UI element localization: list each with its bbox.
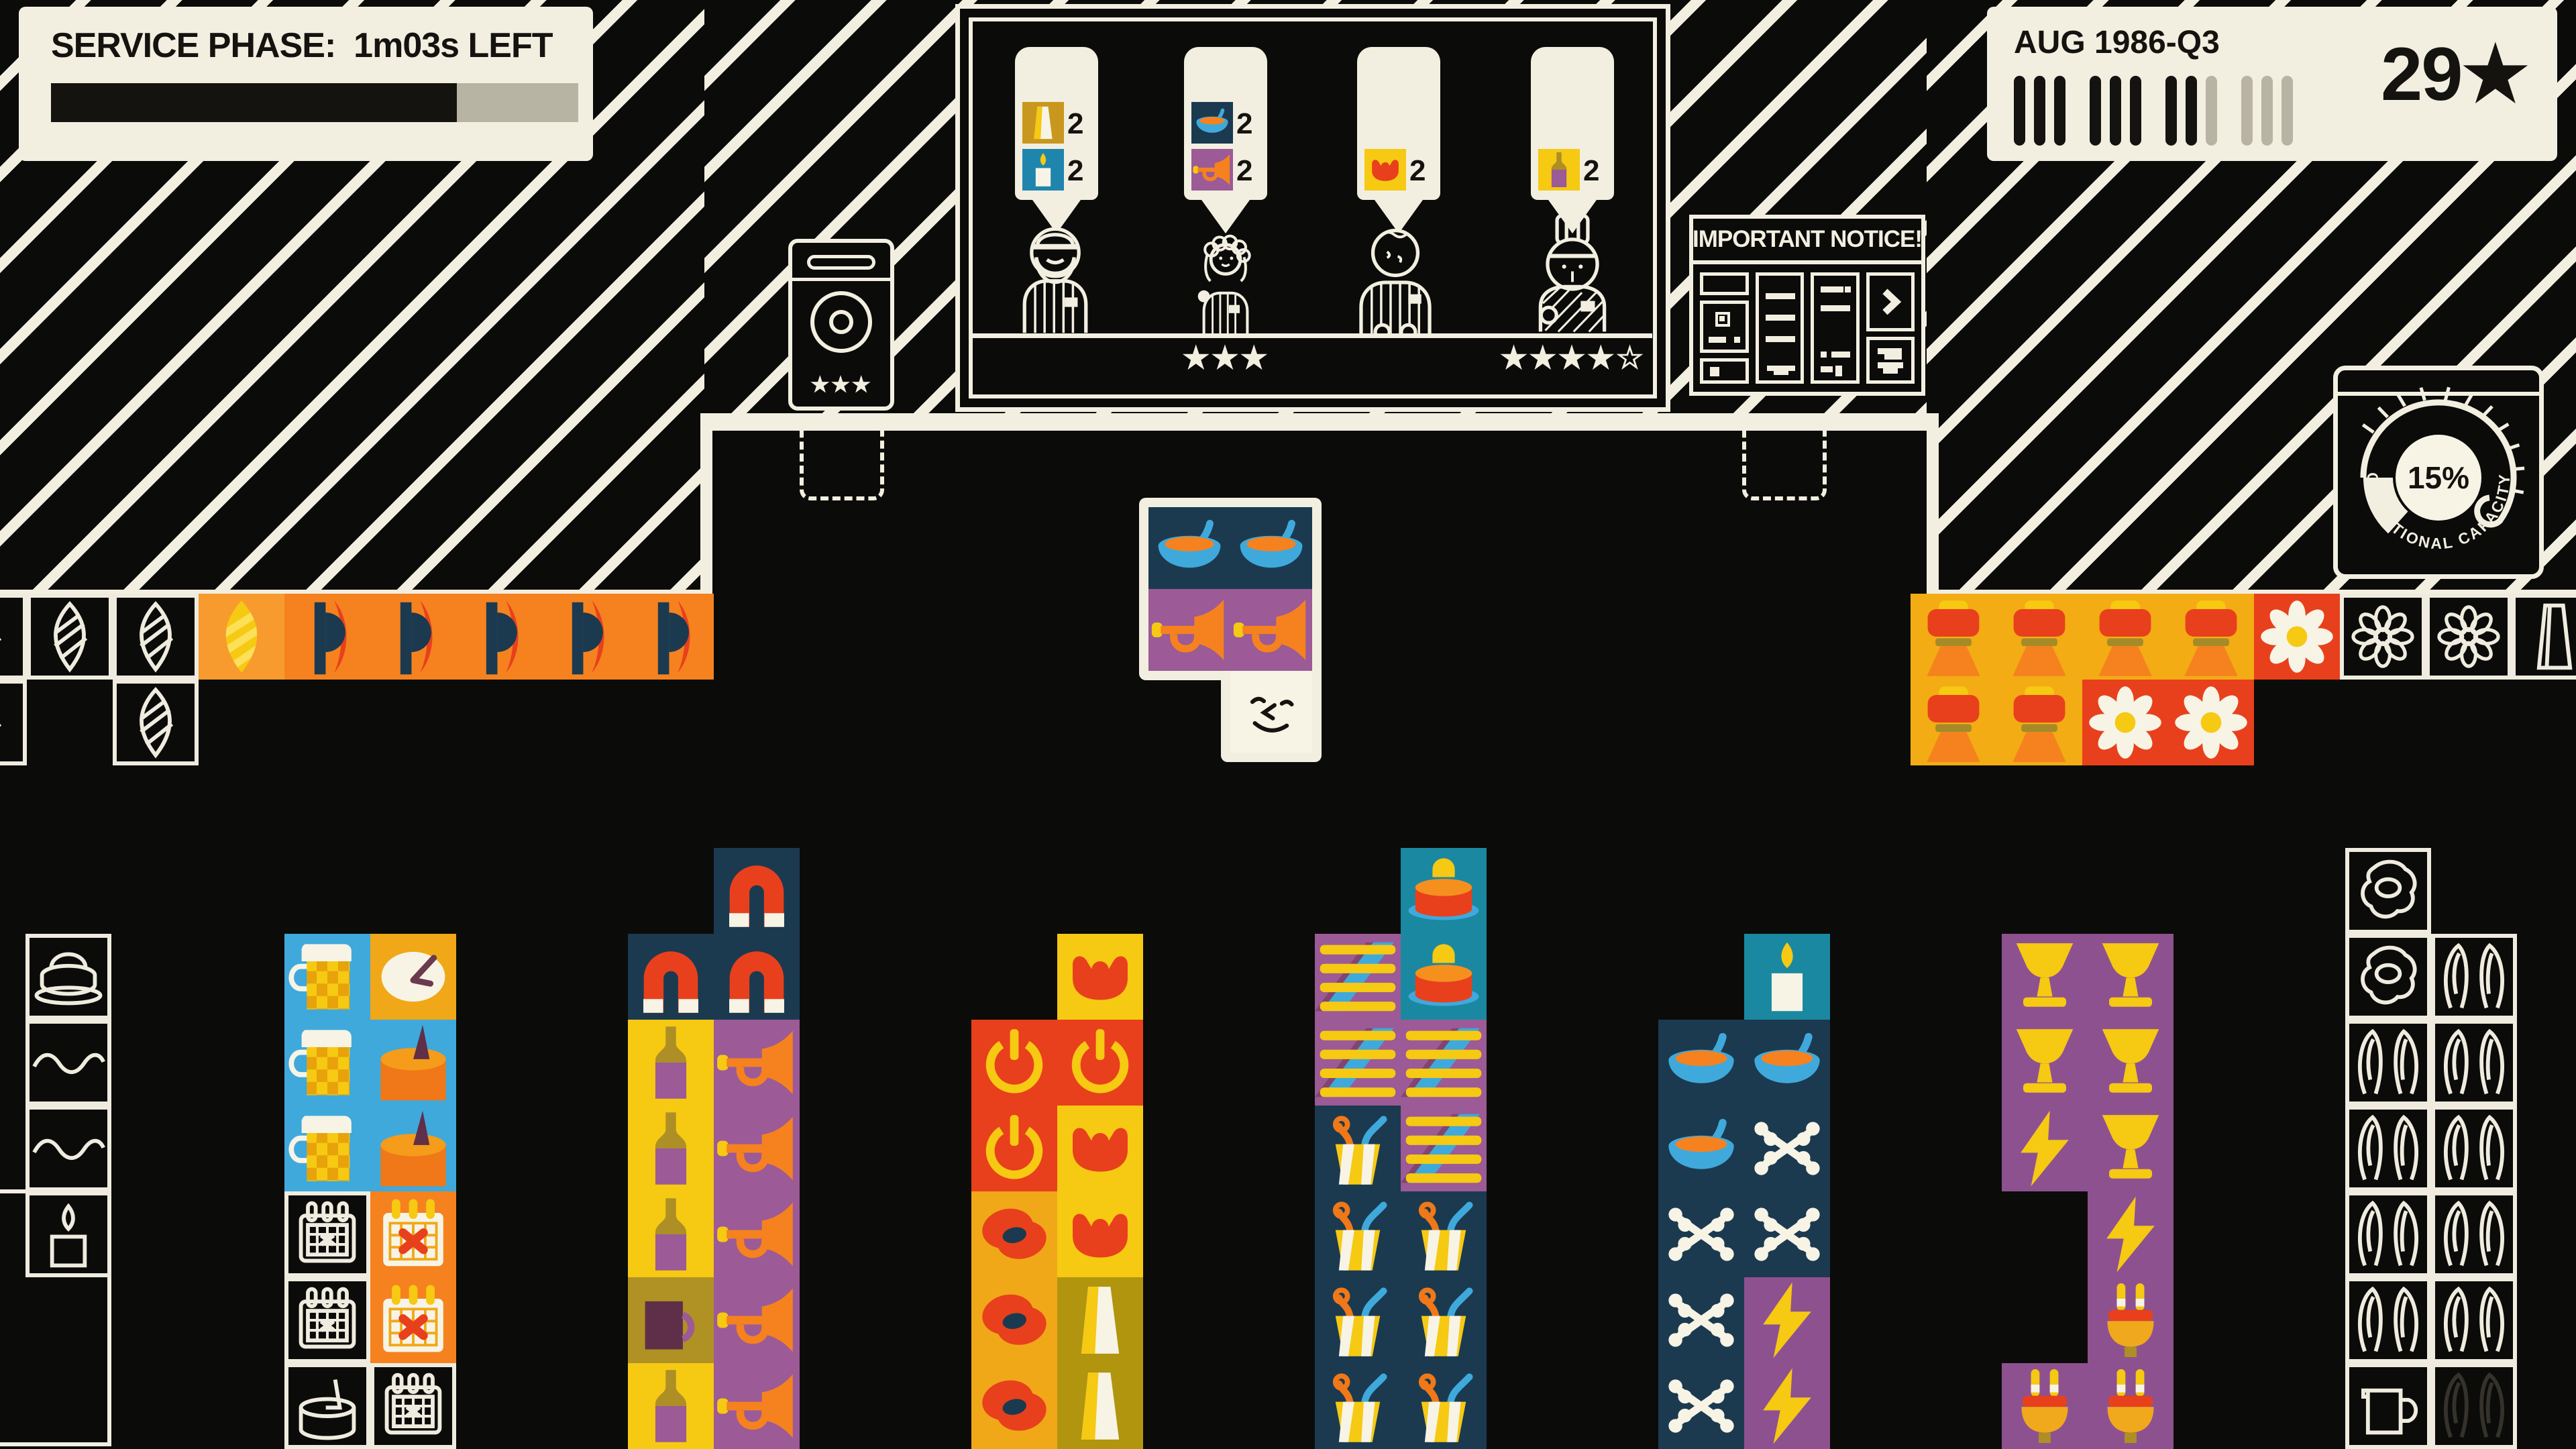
tile-beer[interactable]	[284, 934, 370, 1020]
tile-ears_o[interactable]	[2431, 1020, 2517, 1106]
tile-soup[interactable]	[1230, 507, 1312, 589]
operational-capacity-gauge: 15% OPERATIONAL CAPACITY	[2333, 366, 2544, 579]
counter-ledge	[973, 333, 1652, 338]
customer4-rating-stars: ★★★★☆	[1499, 339, 1646, 376]
speech-bubble-2: 22	[1184, 47, 1267, 200]
tile-straws[interactable]	[1315, 934, 1401, 1020]
tally-bar	[2110, 76, 2121, 146]
tile-axe[interactable]	[542, 594, 628, 680]
tile-cheese_o[interactable]	[2512, 594, 2576, 680]
tile-lamp[interactable]	[1996, 680, 2082, 765]
tile-cal_o[interactable]	[284, 1191, 370, 1277]
tile-lamp[interactable]	[2082, 594, 2168, 680]
important-notice-board[interactable]: IMPORTANT NOTICE!	[1689, 215, 1925, 396]
tile-ears_o[interactable]	[2431, 1106, 2517, 1191]
jukebox-rating-stars: ★★★	[792, 372, 890, 397]
tile-lamp[interactable]	[1911, 680, 1996, 765]
tile-ears_faint[interactable]	[2431, 1363, 2517, 1449]
tile-magnet[interactable]	[714, 934, 800, 1020]
customer-bald-man	[1330, 219, 1461, 337]
tile-sundial[interactable]	[370, 1106, 456, 1191]
tile-candle_o[interactable]	[25, 1191, 111, 1277]
tile-soup[interactable]	[1148, 507, 1230, 589]
tally-bar	[2282, 76, 2293, 146]
tile-straws[interactable]	[1401, 1106, 1487, 1191]
tile-lamp[interactable]	[1996, 594, 2082, 680]
customer-curly-hair-woman	[1164, 227, 1287, 335]
tile-plug[interactable]	[2088, 1363, 2173, 1449]
tile-bottle[interactable]	[628, 1191, 714, 1277]
tally-bar	[2090, 76, 2101, 146]
tile-cheese[interactable]	[1057, 1363, 1143, 1449]
capacity-dial: 15% OPERATIONAL CAPACITY	[2338, 377, 2539, 578]
tile-poppy[interactable]	[971, 1363, 1057, 1449]
tile-power[interactable]	[1057, 1020, 1143, 1106]
request-count: 2	[1409, 154, 1426, 188]
tile-cup[interactable]	[1401, 1277, 1487, 1363]
tile-poppy[interactable]	[971, 1277, 1057, 1363]
tile-ears_o[interactable]	[2345, 1106, 2431, 1191]
tile-tulip[interactable]	[1057, 934, 1143, 1020]
tile-cal_o[interactable]	[284, 1277, 370, 1363]
tile-ears_o[interactable]	[2431, 1277, 2517, 1363]
request-tile-trumpet	[1191, 149, 1233, 191]
tile-wave_o[interactable]	[25, 1020, 111, 1106]
tile-ears_o[interactable]	[2431, 934, 2517, 1020]
tile-tulip[interactable]	[1057, 1191, 1143, 1277]
request-tile-bottle	[1538, 149, 1580, 191]
request-count: 2	[1236, 154, 1252, 188]
tile-egg_o[interactable]	[113, 594, 199, 680]
tile-goblet[interactable]	[2002, 934, 2088, 1020]
notice-title: IMPORTANT NOTICE!	[1689, 215, 1925, 264]
request-count: 2	[1236, 107, 1252, 141]
shelf-line	[0, 1189, 25, 1193]
tile-face[interactable]	[1230, 671, 1312, 753]
star-icon: ★	[2462, 32, 2528, 116]
tile-trumpet[interactable]	[714, 1106, 800, 1191]
tile-straws[interactable]	[1401, 1020, 1487, 1106]
tile-daisy_o[interactable]	[2426, 594, 2512, 680]
tile-ears_o[interactable]	[2345, 1277, 2431, 1363]
service-phase-label: SERVICE PHASE: 1m03s LEFT	[51, 25, 561, 66]
tile-power[interactable]	[971, 1020, 1057, 1106]
tile-pancake[interactable]	[1401, 934, 1487, 1020]
tile-bottle[interactable]	[628, 1106, 714, 1191]
request-tile-candle_req	[1022, 149, 1064, 191]
tile-trumpet[interactable]	[1230, 589, 1312, 671]
jukebox-speaker[interactable]: ★★★	[788, 239, 894, 411]
speech-bubble-4: 2	[1531, 47, 1614, 200]
tile-friedegg_o[interactable]	[2345, 848, 2431, 934]
tile-trumpet[interactable]	[714, 1020, 800, 1106]
service-phase-progress-fill	[51, 83, 457, 122]
tile-wave_o[interactable]	[25, 1106, 111, 1191]
tile-trumpet[interactable]	[714, 1363, 800, 1449]
tile-soup[interactable]	[1658, 1020, 1744, 1106]
tile-bones[interactable]	[1658, 1191, 1744, 1277]
request-tile-tulip	[1364, 149, 1406, 191]
tile-axe[interactable]	[370, 594, 456, 680]
request-count: 2	[1583, 154, 1599, 188]
tally-bar	[2261, 76, 2273, 146]
tile-magnet[interactable]	[714, 848, 800, 934]
date-score-panel: AUG 1986-Q3 29★	[1987, 7, 2557, 161]
tile-bones[interactable]	[1658, 1363, 1744, 1449]
tile-bolt[interactable]	[1744, 1363, 1830, 1449]
tile-egg_o[interactable]	[113, 680, 199, 765]
tile-axe[interactable]	[456, 594, 542, 680]
tile-trumpet[interactable]	[714, 1277, 800, 1363]
tile-pancake[interactable]	[1401, 848, 1487, 934]
tally-bar	[2014, 76, 2025, 146]
tile-bones[interactable]	[1658, 1277, 1744, 1363]
speech-bubble-1: 22	[1015, 47, 1098, 200]
customer2-rating-stars: ★★★	[1165, 339, 1286, 376]
tile-mug_o[interactable]	[2345, 1363, 2431, 1449]
alcove-right-edge	[1927, 413, 1939, 594]
tile-cheese[interactable]	[1057, 1277, 1143, 1363]
request-tile-cheese_req	[1022, 102, 1064, 144]
drop-zone-right[interactable]	[1742, 425, 1827, 500]
tile-lamp[interactable]	[1911, 594, 1996, 680]
tile-axe[interactable]	[628, 594, 714, 680]
service-phase-panel: SERVICE PHASE: 1m03s LEFT	[19, 7, 593, 161]
tile-beer[interactable]	[284, 1020, 370, 1106]
tile-soup[interactable]	[1744, 1020, 1830, 1106]
tile-goblet[interactable]	[2088, 1020, 2173, 1106]
tally-bar	[2054, 76, 2065, 146]
tile-daisy[interactable]	[2254, 594, 2340, 680]
tile-egg_o[interactable]	[0, 680, 27, 765]
tile-poppy[interactable]	[971, 1191, 1057, 1277]
request-count: 2	[1067, 154, 1083, 188]
tile-goblet[interactable]	[2088, 1106, 2173, 1191]
request-count: 2	[1067, 107, 1083, 141]
chevron-right-icon	[1870, 276, 1912, 328]
tile-cup[interactable]	[1315, 1277, 1401, 1363]
tile-daisy[interactable]	[2168, 680, 2254, 765]
tile-plug[interactable]	[2002, 1363, 2088, 1449]
tile-power[interactable]	[971, 1106, 1057, 1191]
capacity-value: 15%	[2408, 460, 2469, 495]
customer-bearded-man	[990, 216, 1120, 334]
tile-bones[interactable]	[1744, 1106, 1830, 1191]
tile-cup[interactable]	[1315, 1363, 1401, 1449]
tally-bar	[2206, 76, 2217, 146]
tile-egg_o[interactable]	[0, 594, 27, 680]
tally-bar	[2165, 76, 2177, 146]
tally-bar	[2186, 76, 2197, 146]
tile-clock[interactable]	[370, 934, 456, 1020]
tile-cal_r[interactable]	[370, 1191, 456, 1277]
tile-bolt[interactable]	[2002, 1106, 2088, 1191]
tile-bones[interactable]	[1744, 1191, 1830, 1277]
tile-mug[interactable]	[628, 1277, 714, 1363]
tile-candle[interactable]	[1744, 934, 1830, 1020]
tile-bottle[interactable]	[628, 1020, 714, 1106]
tile-sundial[interactable]	[370, 1020, 456, 1106]
tile-goblet[interactable]	[2002, 1020, 2088, 1106]
shelf-line	[0, 1442, 111, 1446]
tile-cup[interactable]	[1401, 1363, 1487, 1449]
tile-goblet[interactable]	[2088, 934, 2173, 1020]
request-tile-soup	[1191, 102, 1233, 144]
tile-magnet[interactable]	[628, 934, 714, 1020]
tile-cal_o[interactable]	[370, 1363, 456, 1449]
tally-bar	[2130, 76, 2141, 146]
tile-bottle[interactable]	[628, 1363, 714, 1449]
tile-lamp[interactable]	[2168, 594, 2254, 680]
tile-beer[interactable]	[284, 1106, 370, 1191]
shelf-line	[107, 1277, 111, 1446]
tile-ears_o[interactable]	[2345, 1191, 2431, 1277]
speaker-cone-center-icon	[829, 310, 853, 334]
drop-zone-left[interactable]	[800, 425, 884, 500]
notice-body	[1689, 264, 1925, 396]
tile-soup[interactable]	[1658, 1106, 1744, 1191]
tile-pancake_o[interactable]	[25, 934, 111, 1020]
tile-straws[interactable]	[1315, 1020, 1401, 1106]
tile-trumpet[interactable]	[714, 1191, 800, 1277]
tile-plug[interactable]	[2088, 1277, 2173, 1363]
tile-egg_o[interactable]	[27, 594, 113, 680]
tile-cup[interactable]	[1315, 1106, 1401, 1191]
score-value: 29	[2381, 32, 2462, 116]
tile-bolt[interactable]	[2088, 1191, 2173, 1277]
tile-cup[interactable]	[1315, 1191, 1401, 1277]
game-screen: SERVICE PHASE: 1m03s LEFT AUG 1986-Q3 29…	[0, 0, 2576, 1449]
tile-bolt[interactable]	[1744, 1277, 1830, 1363]
tally-bar	[2241, 76, 2253, 146]
tile-ears_o[interactable]	[2345, 1020, 2431, 1106]
tile-axe[interactable]	[284, 594, 370, 680]
tile-daisy_o[interactable]	[2340, 594, 2426, 680]
tally-bar	[2034, 76, 2045, 146]
tile-friedegg_o[interactable]	[2345, 934, 2431, 1020]
tile-daisy[interactable]	[2082, 680, 2168, 765]
divider	[792, 278, 890, 281]
tile-egg_hl[interactable]	[199, 594, 284, 680]
customer-bunny-helmet-astronaut	[1507, 212, 1638, 335]
tile-ears_o[interactable]	[2431, 1191, 2517, 1277]
tile-tulip[interactable]	[1057, 1106, 1143, 1191]
speech-bubble-3: 2	[1357, 47, 1440, 200]
tile-cup[interactable]	[1401, 1191, 1487, 1277]
tile-trumpet[interactable]	[1148, 589, 1230, 671]
tile-cal_r[interactable]	[370, 1277, 456, 1363]
service-phase-progressbar	[51, 83, 578, 122]
jukebox-slot	[807, 255, 875, 270]
alcove-left-edge	[700, 413, 712, 594]
star-score: 29★	[2381, 31, 2528, 118]
tile-sundial_o[interactable]	[284, 1363, 370, 1449]
